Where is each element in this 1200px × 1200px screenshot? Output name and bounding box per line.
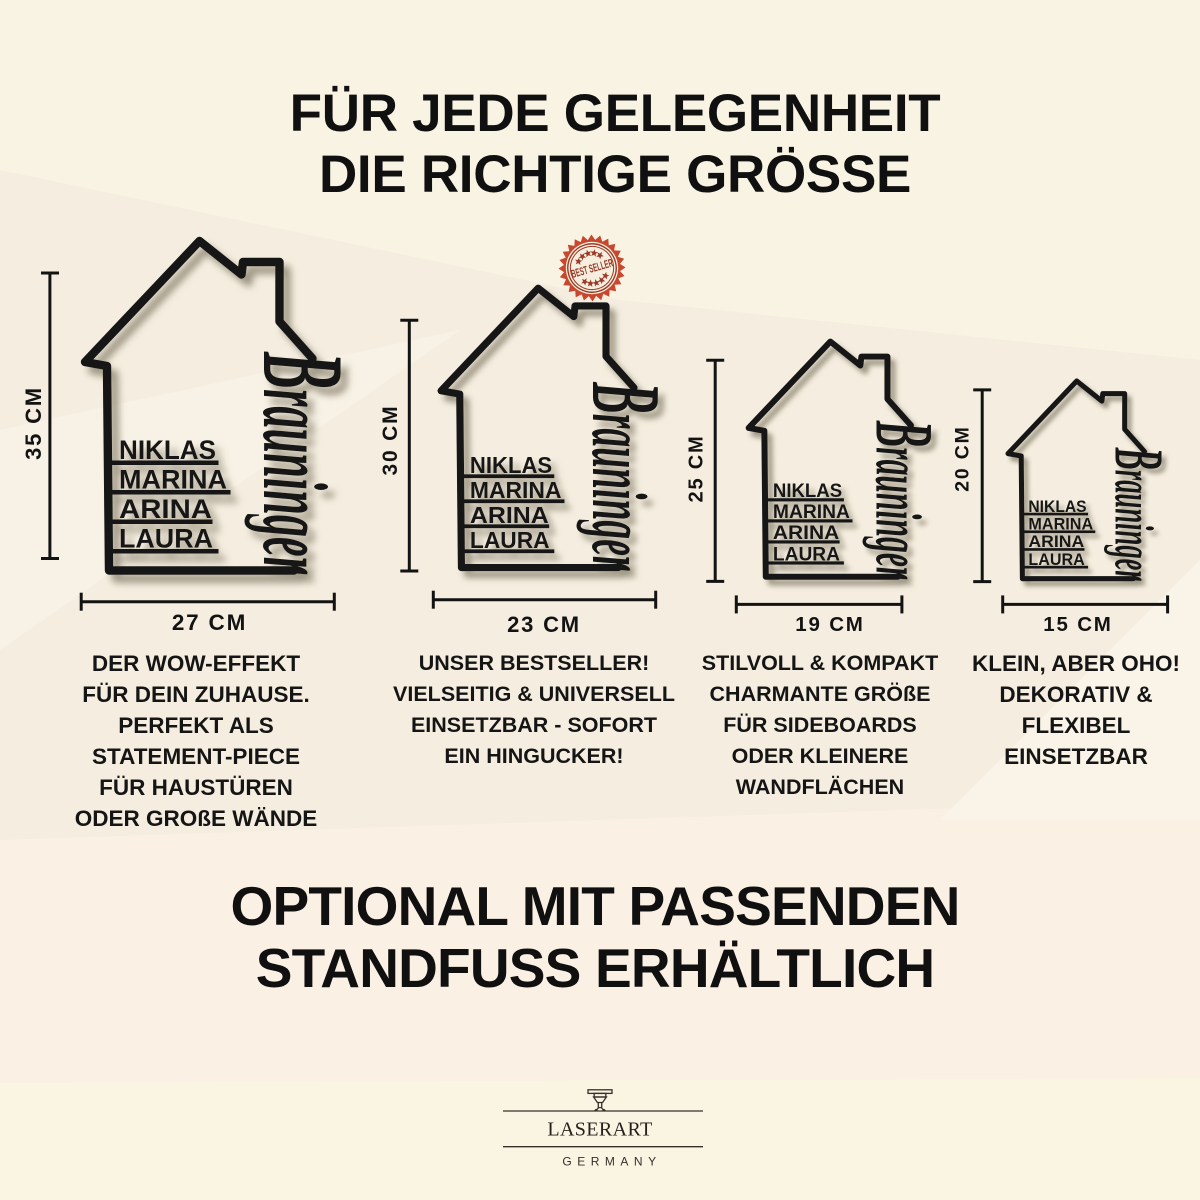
svg-text:LASERART: LASERART (547, 1119, 652, 1141)
svg-text:GERMANY: GERMANY (562, 1155, 661, 1169)
